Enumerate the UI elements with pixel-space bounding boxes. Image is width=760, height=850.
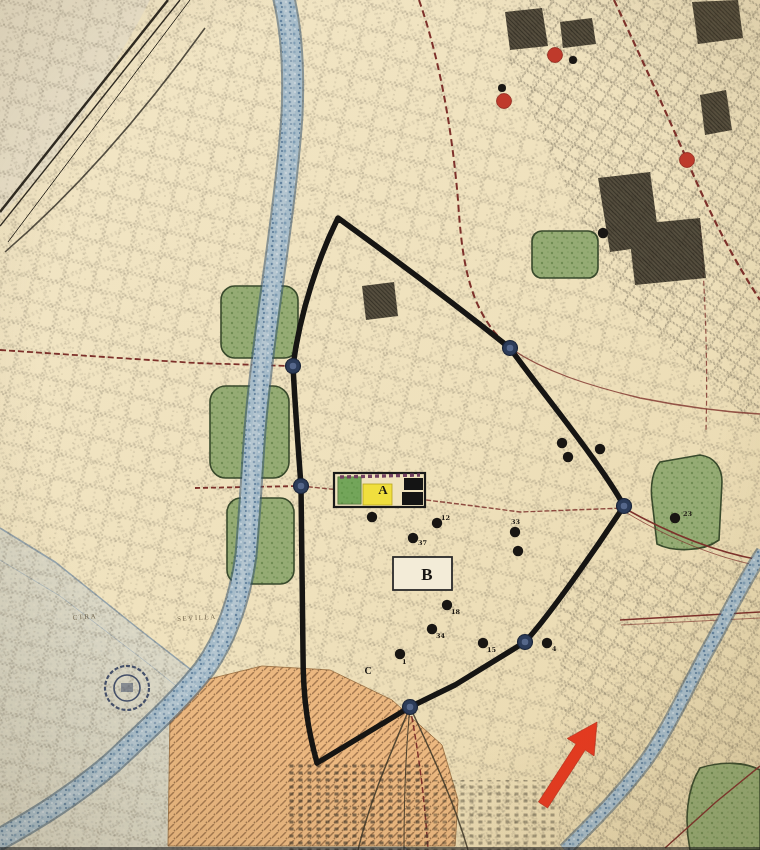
poi-dot <box>367 512 377 522</box>
street-name-label: CTRA <box>72 612 97 621</box>
poi-dot <box>498 84 506 92</box>
poi-dot-number: 4 <box>552 645 557 653</box>
poi-dot-number: 33 <box>511 518 521 526</box>
poi-dot-number: 1 <box>402 658 407 666</box>
poi-dot <box>670 513 680 523</box>
poi-dot <box>595 444 605 454</box>
park-northeast <box>532 231 598 278</box>
wall-node-center <box>621 503 628 510</box>
poi-dot-number: 37 <box>418 539 427 547</box>
wall-node-center <box>407 704 414 711</box>
wall-node-center <box>507 345 514 352</box>
site-letter-b: B <box>421 565 432 584</box>
poi-dot <box>598 228 608 238</box>
site-letter-a: A <box>378 482 388 497</box>
poi-dot <box>513 546 523 556</box>
poi-red-dot <box>680 153 695 168</box>
poi-dot-number: 23 <box>683 510 693 518</box>
wall-node-center <box>290 363 297 370</box>
park-east <box>651 455 722 550</box>
poi-dot <box>569 56 577 64</box>
wall-node-center <box>522 639 529 646</box>
poi-dot-number: 15 <box>487 646 497 654</box>
poi-red-dot <box>548 48 563 63</box>
poi-dot-number: 12 <box>441 514 450 522</box>
site-letter-c: C <box>364 665 371 676</box>
park-southeast-corner <box>687 763 760 850</box>
historical-map-screenshot: 1237331834151423 ABC CTRASEVILLA <box>0 0 760 850</box>
poi-dot <box>510 527 520 537</box>
poi-dot-number: 18 <box>451 608 461 616</box>
poi-dot <box>557 438 567 448</box>
poi-dot <box>542 638 552 648</box>
poi-dot <box>408 533 418 543</box>
wall-node-center <box>298 483 305 490</box>
poi-dot <box>563 452 573 462</box>
poi-red-dot <box>497 94 512 109</box>
poi-dot-number: 34 <box>436 632 446 640</box>
map-canvas: 1237331834151423 ABC CTRASEVILLA <box>0 0 760 850</box>
